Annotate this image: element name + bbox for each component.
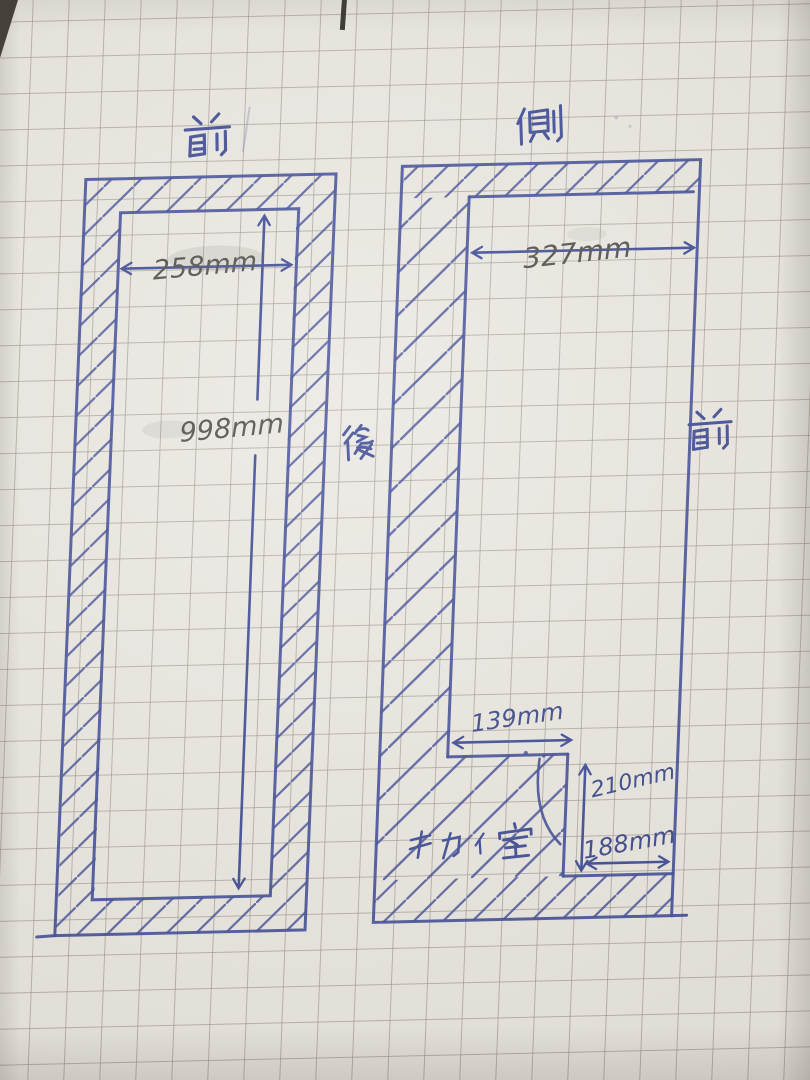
front-left-wall-hatch [58, 213, 120, 901]
dim-front-width-label: 258mm [152, 246, 257, 286]
sketch-drawing: 258mm 998mm [0, 0, 810, 1080]
dim-front-height-arrow-top [257, 216, 264, 399]
dim-side-width-label: 327mm [522, 231, 632, 276]
photo-of-sketch: 258mm 998mm [0, 0, 810, 1080]
side-bottom-wall-hatch [373, 874, 673, 923]
dim-notch-top-width-label: 139mm [470, 697, 565, 738]
dim-front-height-label: 998mm [179, 408, 284, 448]
kanji-back-label [343, 424, 373, 460]
kanji-side-view-title [517, 106, 561, 145]
dim-notch-bottom-width-label: 188mm [581, 821, 676, 865]
dim-notch-top-width-arrow [454, 740, 570, 743]
kanji-front-view-title [185, 113, 230, 157]
front-right-wall-hatch [270, 208, 332, 896]
side-view-diagram [373, 159, 715, 922]
grid-paper: 258mm 998mm [0, 0, 810, 1080]
front-inner-outline [92, 209, 299, 900]
dim-notch-height-label: 210mm [589, 760, 677, 804]
front-view-diagram [37, 174, 336, 937]
dim-front-height-arrow-bottom [239, 455, 256, 887]
side-left-wall-hatch [380, 197, 470, 759]
front-overshoot-stroke [37, 936, 55, 937]
kanji-front-label-side-view [689, 409, 732, 451]
front-view-dimensions [99, 216, 293, 891]
